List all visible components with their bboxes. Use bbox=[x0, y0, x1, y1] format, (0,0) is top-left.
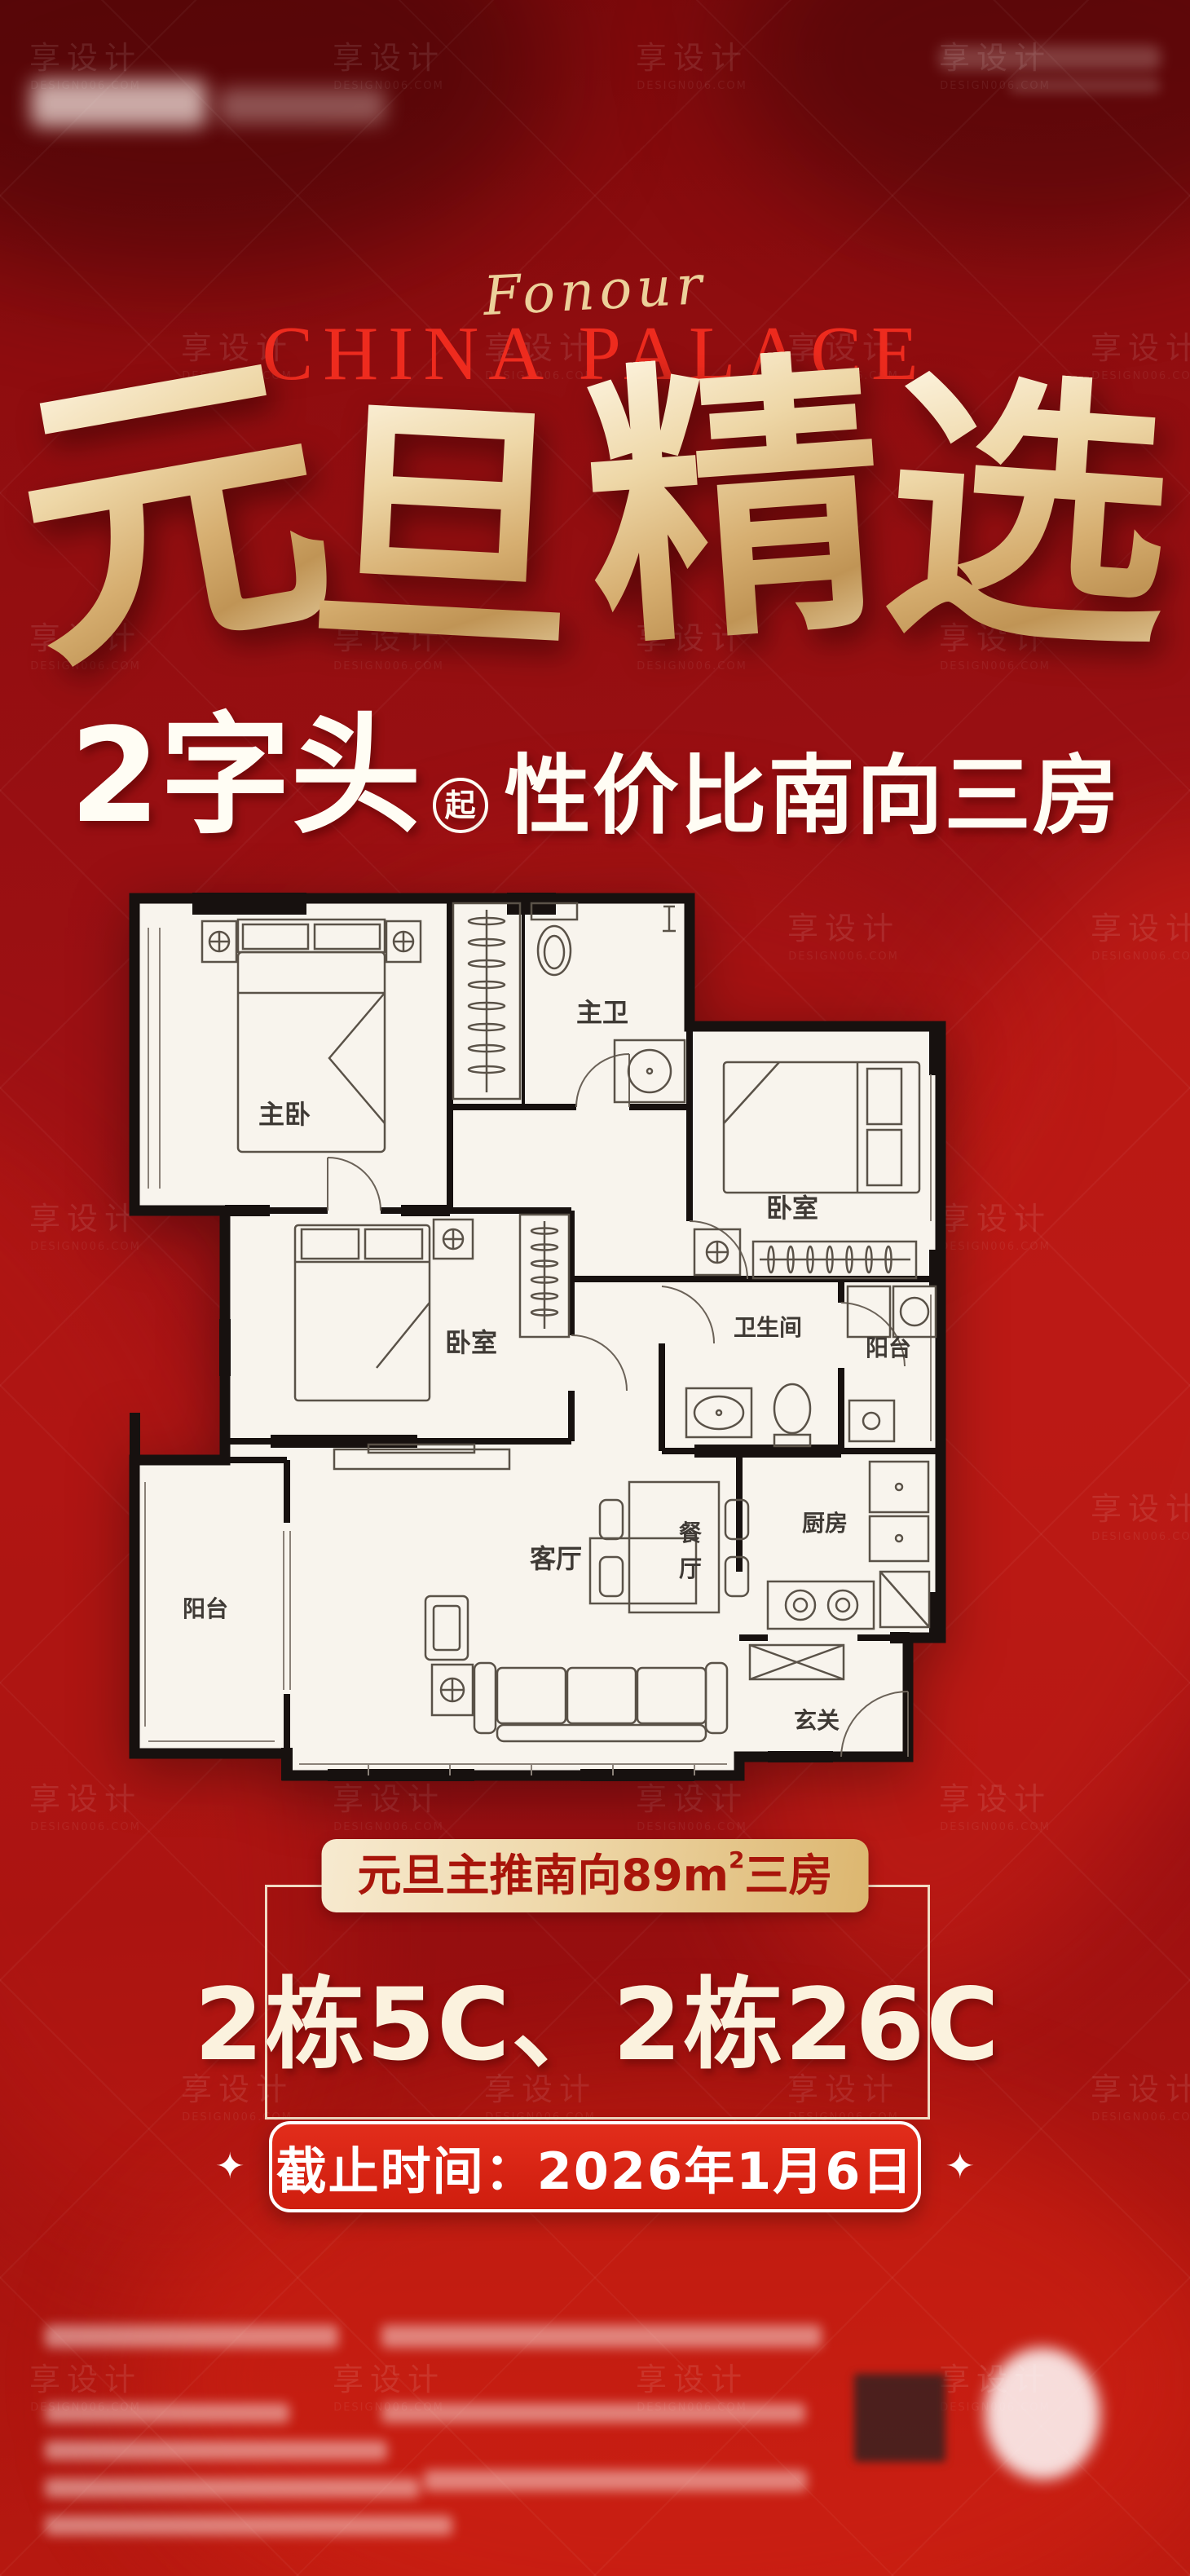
deadline-text: 截止时间：2026年1月6日 bbox=[276, 2130, 915, 2203]
footer-blurred-text-line bbox=[381, 2325, 822, 2348]
footer-blurred-text-line bbox=[45, 2478, 420, 2498]
footer-blurred-text-line bbox=[45, 2441, 387, 2460]
subline: 2字头 起 性价比南向三房 bbox=[0, 711, 1190, 841]
footer-blurred-text-line bbox=[381, 2403, 805, 2423]
room-label-balcony-right: 阳台 bbox=[866, 1334, 911, 1361]
badge-superscript: 2 bbox=[729, 1849, 744, 1872]
badge-text-post: 三房 bbox=[744, 1854, 832, 1898]
footer-blurred-text-line bbox=[45, 2516, 452, 2535]
price-text: 2字头 bbox=[69, 711, 421, 841]
star-icon: ✦ bbox=[945, 2149, 975, 2185]
footer-logo-blurred bbox=[985, 2348, 1100, 2480]
badge-text-pre: 元旦主推南向89m bbox=[358, 1854, 729, 1898]
footer-blurred-text-line bbox=[45, 2403, 289, 2423]
hero-char: 旦 bbox=[305, 390, 584, 669]
units-box: 2栋5C、2栋26C bbox=[265, 1885, 930, 2119]
watermark-tile: 享设计DESIGN006.COM bbox=[254, 33, 523, 92]
room-label-bedroom-b: 卧室 bbox=[445, 1327, 497, 1358]
room-label-bathroom: 卫生间 bbox=[734, 1314, 802, 1341]
footer-blurred-text-line bbox=[424, 2470, 807, 2491]
footer-qr-code-blurred bbox=[854, 2374, 945, 2462]
room-label-dining-1: 餐 bbox=[679, 1520, 703, 1546]
hero-char: 选 bbox=[876, 364, 1179, 666]
units-text: 2栋5C、2栋26C bbox=[194, 1917, 1001, 2089]
watermark-tile: 享设计DESIGN006.COM bbox=[1012, 1484, 1190, 1543]
room-label-balcony-left: 阳台 bbox=[183, 1595, 228, 1622]
watermark-tile: 享设计DESIGN006.COM bbox=[1012, 2064, 1190, 2124]
hero-calligraphy: 元 旦 精 选 bbox=[0, 349, 1190, 652]
room-label-dining-2: 厅 bbox=[679, 1555, 702, 1582]
room-label-kitchen: 厨房 bbox=[802, 1510, 848, 1537]
deadline-pill: ✦ 截止时间：2026年1月6日 ✦ bbox=[269, 2121, 921, 2212]
room-label-master-bath: 主卫 bbox=[576, 997, 628, 1028]
blurred-corner-text bbox=[1009, 78, 1161, 93]
blurred-developer-logo bbox=[31, 80, 206, 127]
footer-blurred-text-line bbox=[45, 2325, 338, 2348]
blurred-corner-text bbox=[939, 46, 1161, 70]
room-label-entry: 玄关 bbox=[794, 1707, 840, 1734]
blurred-developer-logo-text bbox=[218, 88, 386, 124]
qi-circle-badge: 起 bbox=[433, 778, 488, 833]
floorplan-diagram: 主卧 主卫 卧室 卧室 卫生间 阳台 餐 厅 厨房 阳台 客厅 玄关 bbox=[124, 879, 952, 1785]
hero-char: 元 bbox=[0, 337, 348, 689]
watermark-tile: 享设计DESIGN006.COM bbox=[1012, 903, 1190, 963]
hero-char: 精 bbox=[576, 346, 893, 663]
promo-badge: 元旦主推南向89m2三房 bbox=[322, 1839, 869, 1912]
room-label-master: 主卧 bbox=[258, 1099, 311, 1130]
room-label-living: 客厅 bbox=[530, 1543, 582, 1574]
star-icon: ✦ bbox=[215, 2149, 245, 2185]
room-label-bedroom-a: 卧室 bbox=[766, 1193, 818, 1224]
poster-canvas: 享设计DESIGN006.COM享设计DESIGN006.COM享设计DESIG… bbox=[0, 0, 1190, 2576]
watermark-tile: 享设计DESIGN006.COM bbox=[558, 33, 826, 92]
tagline-text: 性价比南向三房 bbox=[505, 751, 1121, 841]
